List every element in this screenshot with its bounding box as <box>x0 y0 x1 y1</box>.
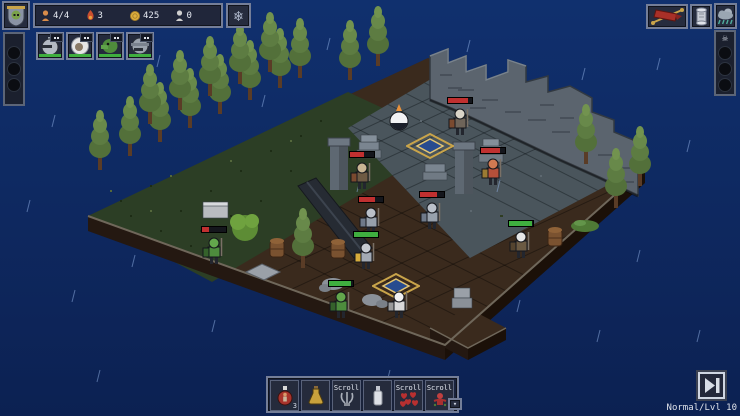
player-hooded-mage[interactable] <box>385 282 413 323</box>
party-icon <box>41 10 50 21</box>
action-badge <box>140 33 153 42</box>
red-potion-icon <box>276 385 294 407</box>
player-crossbowman[interactable] <box>507 220 535 263</box>
unit-health-bar <box>447 97 473 104</box>
item-slot-scroll-claw[interactable]: Scroll <box>332 380 361 411</box>
unit-health-bar <box>328 280 354 287</box>
item-slot-yellow-potion[interactable] <box>301 380 330 411</box>
unit-health-bar <box>508 220 534 227</box>
rain-cloud-icon <box>716 6 735 27</box>
claw-icon <box>338 392 356 407</box>
enemy-soldier-east[interactable] <box>418 191 446 234</box>
portrait-health <box>99 54 121 57</box>
enemy-imp[interactable] <box>479 147 507 190</box>
item-slot-scroll-hearts[interactable]: Scroll <box>394 380 423 411</box>
player-morale-meter <box>3 32 25 106</box>
party-portraits <box>36 32 154 60</box>
resource-captives: 0 <box>175 10 216 21</box>
coin-icon <box>130 11 140 21</box>
unit-health-bar <box>349 151 375 158</box>
portrait-knight[interactable] <box>36 32 64 60</box>
morale-pip <box>7 78 21 92</box>
portrait-health <box>39 54 61 57</box>
morale-pip <box>718 46 732 60</box>
portrait-health <box>69 54 91 57</box>
item-label: Scroll <box>396 384 421 392</box>
scrolls-button[interactable] <box>690 4 712 29</box>
unit-health-bar <box>201 226 227 233</box>
unit-health-bar <box>358 196 384 203</box>
end-turn-button[interactable] <box>696 370 727 401</box>
portrait-soldier[interactable] <box>126 32 154 60</box>
portrait-hooded-mage[interactable] <box>66 32 94 60</box>
player-crest-icon <box>5 4 27 28</box>
action-badge <box>110 33 123 42</box>
action-badge <box>80 33 93 42</box>
item-bar: 3 Scroll Scroll <box>266 376 459 413</box>
unit-health-bar <box>480 147 506 154</box>
player-swordsman[interactable] <box>352 231 380 274</box>
item-label: Scroll <box>427 384 452 392</box>
yellow-potion-icon <box>307 385 325 407</box>
fast-forward-icon <box>700 374 723 397</box>
morale-pip <box>718 62 732 76</box>
enemy-banner-icon <box>649 7 685 26</box>
weather-indicator[interactable] <box>714 3 737 29</box>
item-slot-unit-potion[interactable]: 3 <box>270 380 299 411</box>
scroll-icon <box>694 7 709 26</box>
spellbook-button[interactable]: ❄ <box>226 3 251 28</box>
difficulty-level: Normal/Lvl 10 <box>667 403 737 413</box>
morale-pip <box>7 46 21 60</box>
chevron-down-icon: ▾ <box>453 400 457 408</box>
action-badge <box>50 33 63 42</box>
item-label: Scroll <box>334 384 359 392</box>
player-lizardfolk-south[interactable] <box>327 280 355 323</box>
hearts-icon <box>399 392 419 408</box>
snowflake-icon: ❄ <box>234 7 243 25</box>
game-window: 4/4 3 425 0 ❄ <box>0 0 740 416</box>
captive-icon <box>175 10 184 21</box>
white-vial-icon <box>369 385 387 407</box>
enemy-archer-north[interactable] <box>446 97 474 140</box>
item-count: 3 <box>293 402 297 410</box>
resource-party: 4/4 <box>41 10 82 21</box>
enemy-morale-meter: ☠ <box>714 30 736 96</box>
item-slot-white-vial[interactable] <box>363 380 392 411</box>
unit-health-bar <box>419 191 445 198</box>
player-lizardfolk-west[interactable] <box>200 226 228 269</box>
resource-bar: 4/4 3 425 0 <box>33 3 223 28</box>
resource-torches: 3 <box>86 10 127 21</box>
unit-health-bar <box>353 231 379 238</box>
flame-icon <box>86 10 95 21</box>
enemy-skull-icon: ☠ <box>722 34 728 44</box>
morale-pip <box>7 62 21 76</box>
morale-pip <box>718 78 732 92</box>
item-bar-collapse-button[interactable]: ▾ <box>448 398 462 410</box>
resource-gold: 425 <box>130 11 171 21</box>
enemy-banner[interactable] <box>646 4 688 29</box>
enemy-wisp[interactable] <box>385 97 413 138</box>
enemy-archer-west[interactable] <box>348 151 376 194</box>
portrait-lizardfolk[interactable] <box>96 32 124 60</box>
charm-figure-icon <box>431 392 449 408</box>
portrait-health <box>129 54 151 57</box>
player-crest[interactable] <box>2 1 30 30</box>
